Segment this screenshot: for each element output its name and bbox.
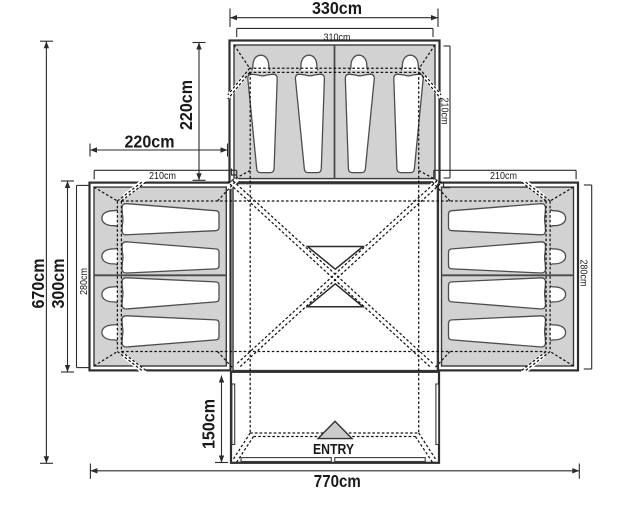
- svg-text:300cm: 300cm: [48, 259, 68, 309]
- svg-text:220cm: 220cm: [176, 80, 196, 130]
- svg-text:210cm: 210cm: [439, 98, 450, 125]
- svg-text:210cm: 210cm: [490, 171, 517, 182]
- svg-text:220cm: 220cm: [125, 131, 175, 151]
- svg-text:330cm: 330cm: [312, 0, 362, 18]
- svg-text:310cm: 310cm: [324, 32, 351, 43]
- svg-text:210cm: 210cm: [149, 171, 176, 182]
- svg-text:280cm: 280cm: [79, 268, 90, 295]
- svg-text:670cm: 670cm: [28, 259, 48, 309]
- svg-text:770cm: 770cm: [314, 471, 361, 491]
- svg-text:150cm: 150cm: [199, 399, 219, 449]
- svg-text:ENTRY: ENTRY: [313, 441, 354, 458]
- svg-text:280cm: 280cm: [578, 260, 589, 287]
